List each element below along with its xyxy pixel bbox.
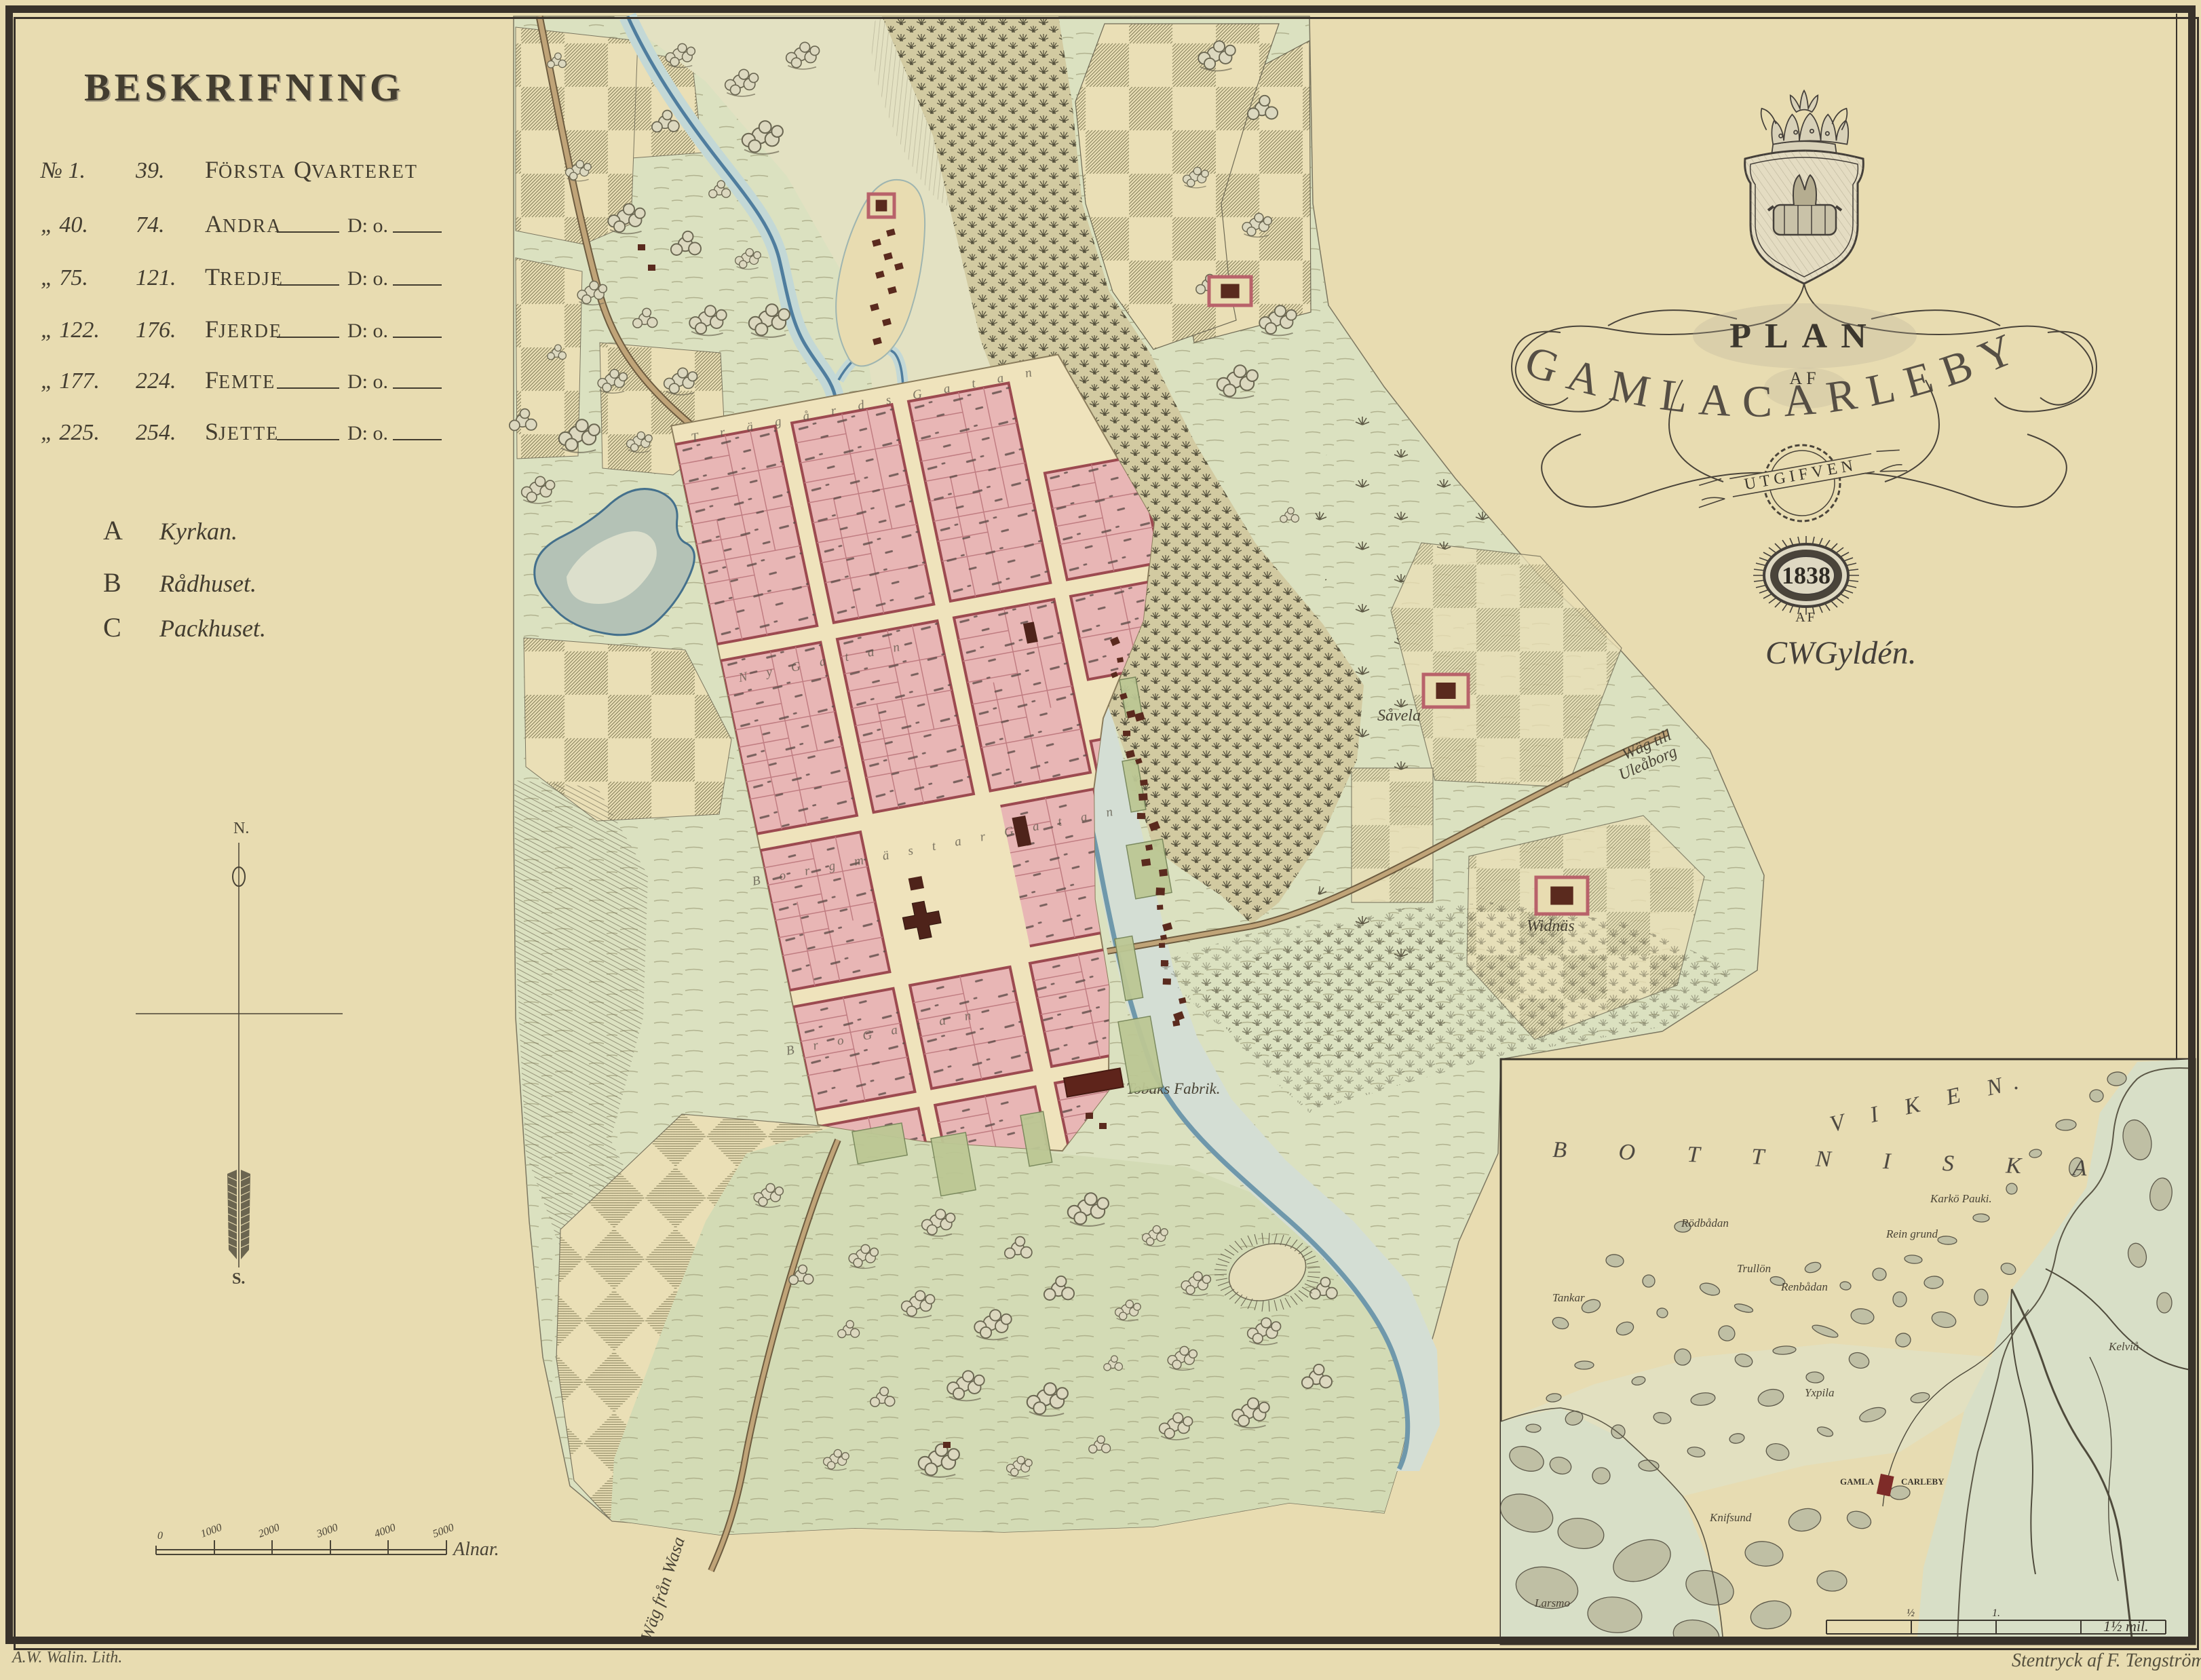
svg-text:Såvela: Såvela [1377,707,1421,725]
svg-text:½: ½ [1907,1607,1915,1619]
svg-text:Packhuset.: Packhuset. [159,615,266,642]
svg-text:Larsmo: Larsmo [1534,1597,1570,1609]
svg-text:„ 122.: „ 122. [41,318,100,343]
svg-text:Karkö Pauki.: Karkö Pauki. [1930,1192,1992,1205]
svg-text:Trullön: Trullön [1737,1262,1771,1275]
svg-text:S.: S. [232,1270,245,1288]
svg-text:Kyrkan.: Kyrkan. [159,518,237,545]
svg-text:1838: 1838 [1782,562,1831,589]
svg-text:„ 75.: „ 75. [41,265,88,290]
svg-text:PLAN: PLAN [1729,317,1880,356]
svg-text:D: o.: D: o. [347,370,388,393]
svg-text:B: B [103,567,121,598]
svg-text:№ 1.: № 1. [40,158,85,183]
svg-text:Widnäs: Widnäs [1527,917,1575,935]
svg-text:„ 177.: „ 177. [41,368,100,394]
svg-text:N.: N. [233,820,249,837]
svg-text:Rådhuset.: Rådhuset. [159,570,256,597]
svg-text:D: o.: D: o. [347,320,388,342]
svg-text:224.: 224. [136,368,176,394]
svg-text:74.: 74. [136,212,165,237]
svg-text:1.: 1. [1992,1607,2000,1619]
svg-text:„ 40.: „ 40. [41,212,88,237]
svg-text:C: C [103,612,121,643]
svg-text:Renbådan: Renbådan [1780,1280,1828,1293]
svg-text:„ 225.: „ 225. [41,420,100,445]
svg-text:D: o.: D: o. [347,422,388,444]
svg-text:0: 0 [157,1530,163,1542]
svg-text:D: o.: D: o. [347,267,388,290]
svg-text:BESKRIFNING: BESKRIFNING [84,65,404,109]
svg-text:Tankar: Tankar [1552,1291,1585,1304]
svg-text:A.W. Walin. Lith.: A.W. Walin. Lith. [11,1649,122,1666]
svg-text:Alnar.: Alnar. [452,1539,499,1560]
svg-text:Knifsund: Knifsund [1709,1511,1752,1524]
svg-text:1½ mil.: 1½ mil. [2103,1618,2149,1635]
svg-text:39.: 39. [135,158,165,183]
svg-text:Rödbådan: Rödbådan [1681,1217,1729,1229]
svg-text:CARLEBY: CARLEBY [1901,1476,1945,1487]
svg-text:AF: AF [1795,610,1817,625]
svg-text:Stentryck af F. Tengström: Stentryck af F. Tengström [2012,1650,2201,1671]
svg-text:176.: 176. [136,318,176,343]
svg-text:GAMLA: GAMLA [1840,1476,1874,1487]
svg-text:A: A [103,515,123,546]
svg-text:254.: 254. [136,420,176,445]
svg-text:Yxpila: Yxpila [1805,1386,1834,1399]
svg-text:Kelviå: Kelviå [2108,1340,2139,1353]
svg-text:CWGyldén.: CWGyldén. [1765,635,1917,671]
svg-text:121.: 121. [136,265,176,290]
svg-text:D: o.: D: o. [347,214,388,237]
svg-text:Rein grund: Rein grund [1886,1227,1938,1240]
